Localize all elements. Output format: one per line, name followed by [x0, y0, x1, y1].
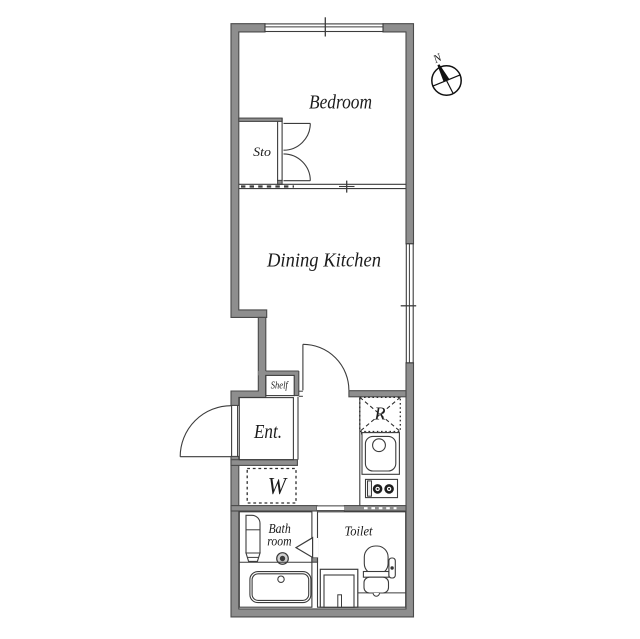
svg-text:room: room	[267, 535, 291, 550]
svg-text:W: W	[268, 473, 288, 500]
svg-text:Sto: Sto	[253, 145, 271, 159]
svg-text:Shelf: Shelf	[271, 379, 290, 391]
svg-text:Ent.: Ent.	[253, 422, 282, 443]
svg-text:Bedroom: Bedroom	[309, 92, 372, 114]
svg-text:Toilet: Toilet	[345, 525, 374, 540]
svg-text:Dining Kitchen: Dining Kitchen	[266, 249, 381, 271]
svg-text:R: R	[373, 403, 385, 423]
